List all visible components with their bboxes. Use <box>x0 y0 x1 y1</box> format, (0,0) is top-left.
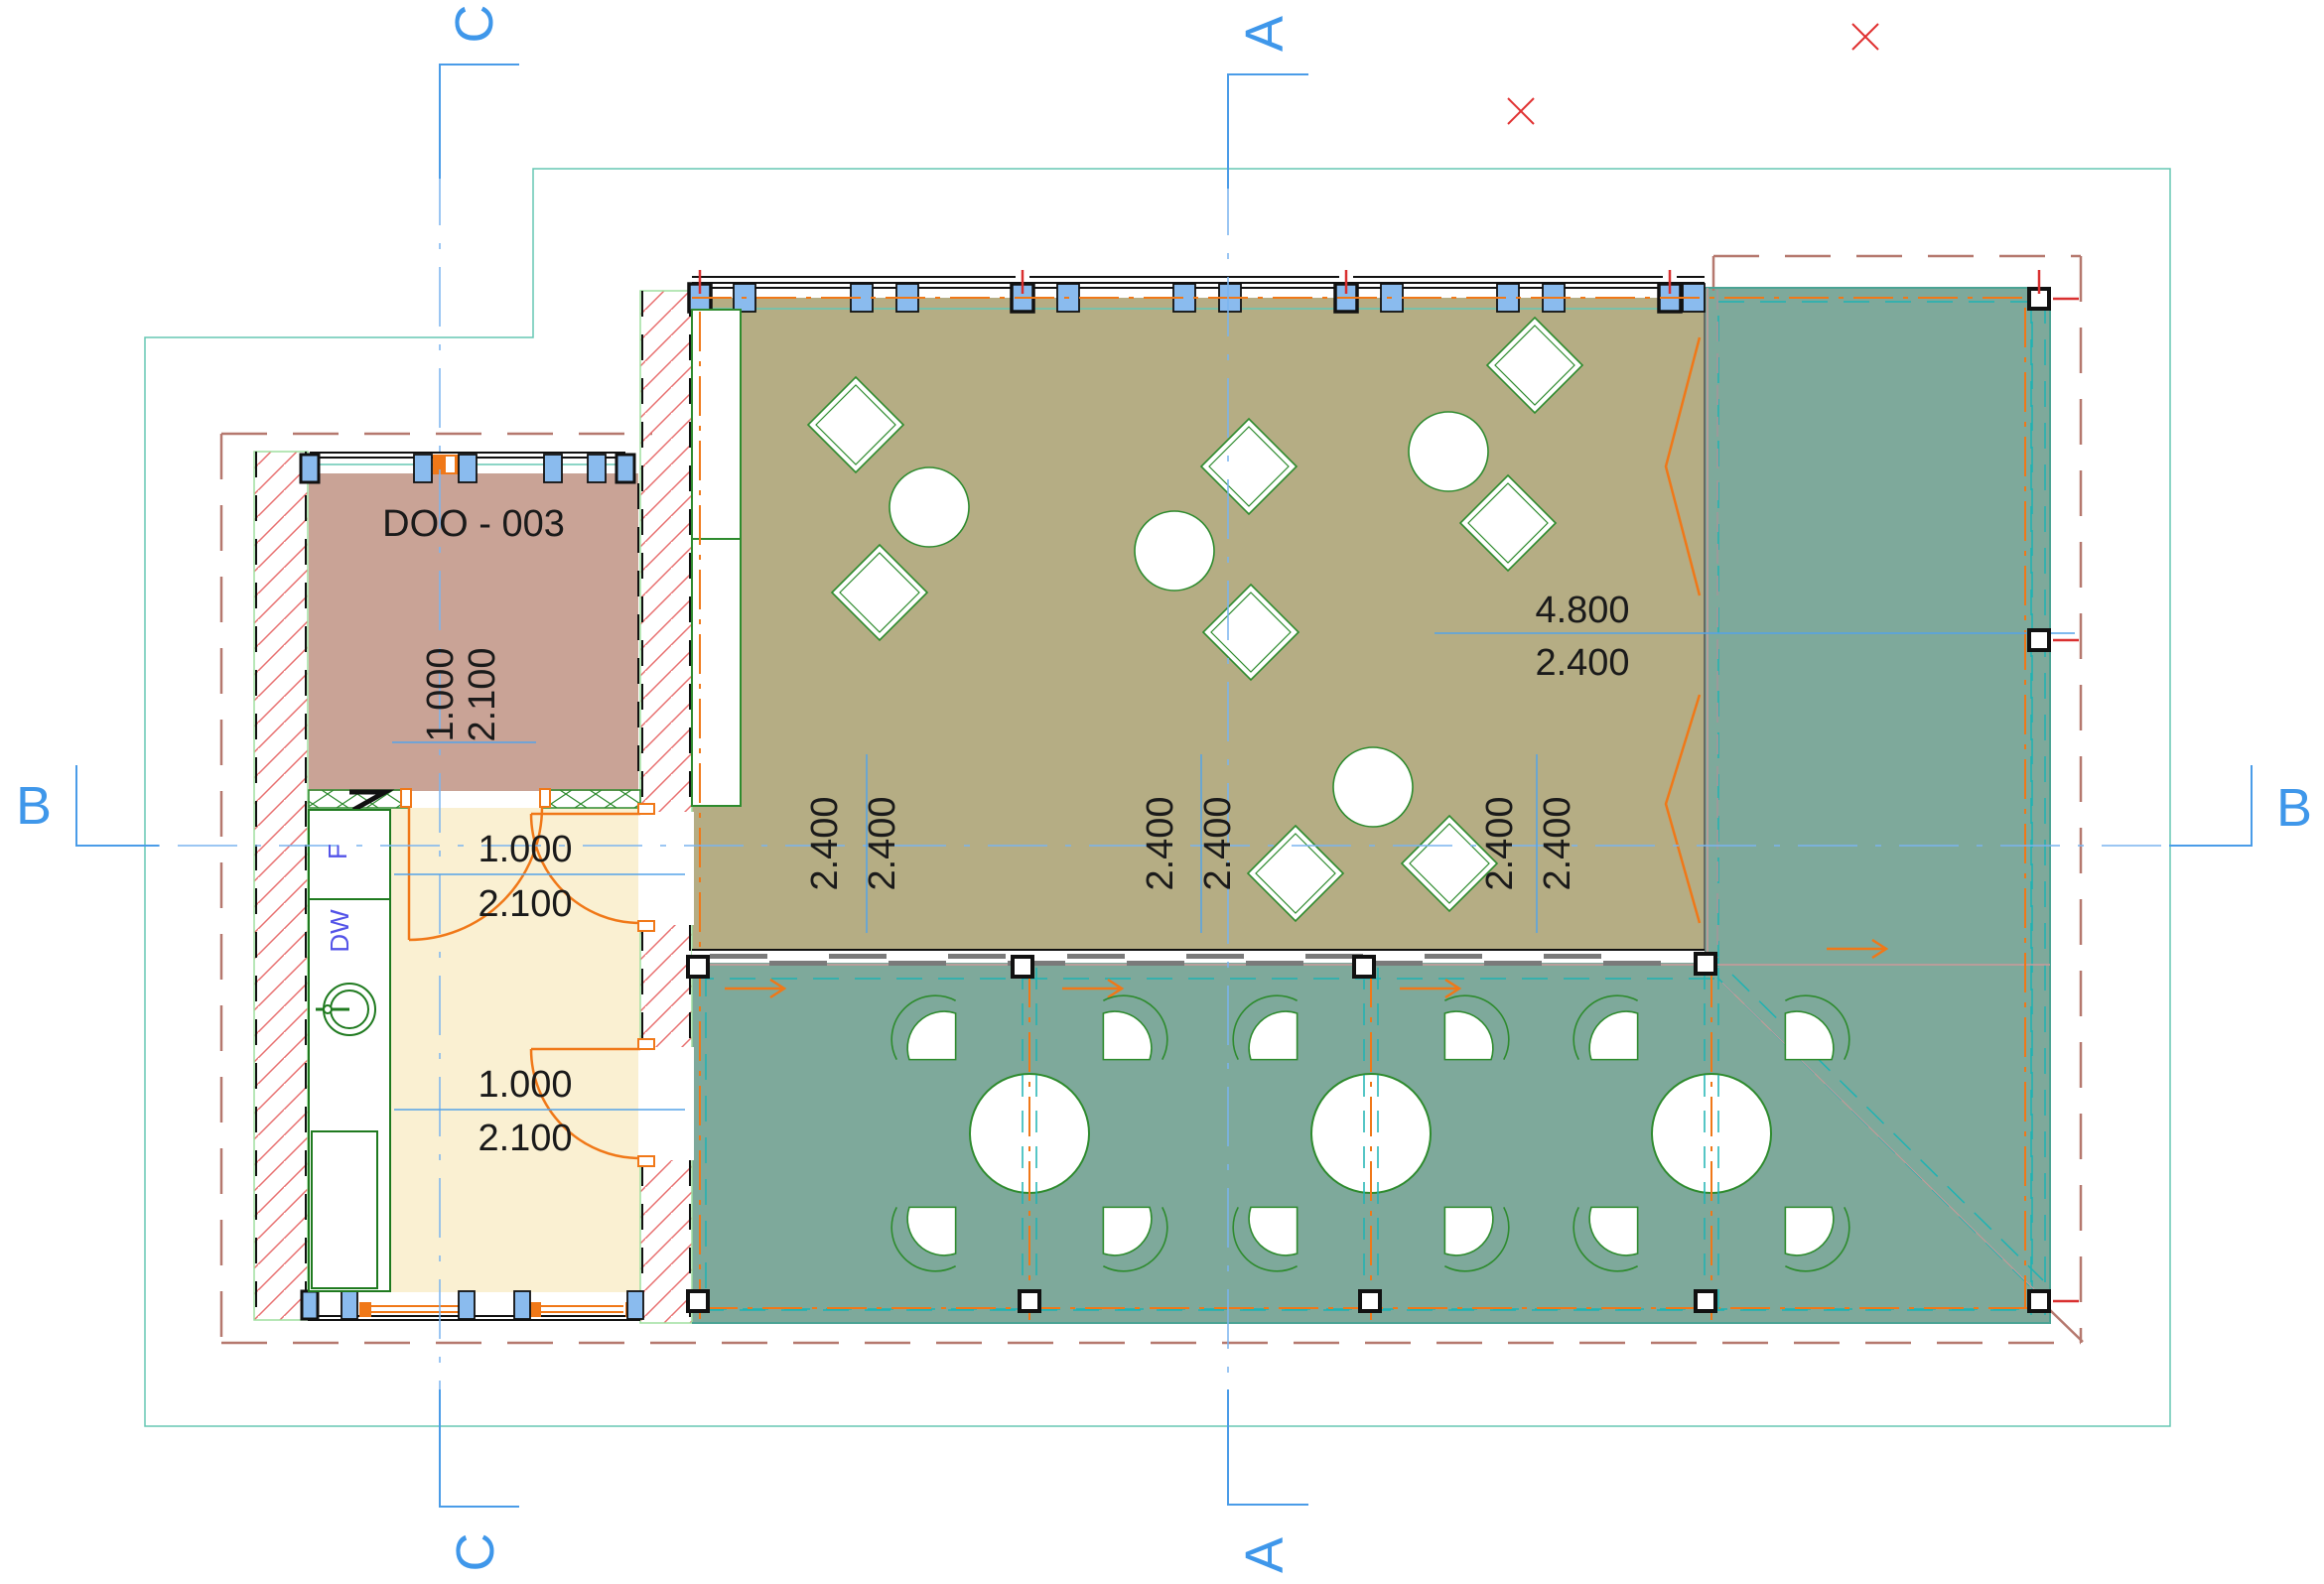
deck-post <box>1360 1291 1380 1311</box>
red-x-mark <box>1508 98 1534 124</box>
dishwasher-label: DW <box>325 909 354 953</box>
deck-post <box>1020 1291 1039 1311</box>
section-bracket-b-left <box>76 765 159 846</box>
window-post <box>302 1291 318 1319</box>
window-orange-sill <box>359 1302 371 1317</box>
sliding-panel <box>1484 961 1542 966</box>
wall-door-gap-upper <box>638 812 694 925</box>
section-marker-b-right: B <box>2276 778 2312 838</box>
window-post <box>342 1291 357 1319</box>
sliding-panel <box>1127 961 1184 966</box>
section-marker-b-left: B <box>16 776 52 836</box>
dim-bay-6: 2.400 <box>1537 796 1578 890</box>
section-bracket-b-right <box>2169 765 2252 846</box>
deck-post <box>2029 1291 2049 1311</box>
deck-post <box>1013 957 1032 977</box>
window-post <box>588 455 606 482</box>
window-post <box>616 455 634 482</box>
section-bracket-c-bottom <box>440 1389 519 1507</box>
wall-hatch-left <box>254 452 308 1320</box>
deck-post <box>1696 954 1715 974</box>
section-marker-c-top: C <box>445 5 504 44</box>
faucet-base <box>324 1005 332 1013</box>
dim-window-right-height: 2.400 <box>1535 642 1629 684</box>
dim-window-right-width: 4.800 <box>1535 590 1629 631</box>
wall-door-gap-lower <box>638 1047 694 1160</box>
window-post <box>544 455 562 482</box>
dim-bay-1: 2.400 <box>804 796 846 890</box>
window-post <box>414 455 432 482</box>
section-bracket-a-bottom <box>1228 1389 1308 1505</box>
dim-door-upper-height: 2.100 <box>478 883 572 925</box>
sliding-panel <box>889 961 946 966</box>
dim-door-lower-height: 2.100 <box>478 1118 572 1159</box>
sliding-panel <box>1603 961 1661 966</box>
window-post <box>459 455 477 482</box>
sliding-panel <box>948 954 1006 959</box>
sliding-panel <box>1425 954 1482 959</box>
dining-table-round <box>1135 511 1214 591</box>
dim-bay-5: 2.400 <box>1479 796 1521 890</box>
sliding-panel <box>1186 954 1244 959</box>
dining-table-round <box>1333 747 1413 827</box>
red-x-mark <box>1852 24 1878 50</box>
deck-post <box>1696 1291 1715 1311</box>
section-marker-c-bottom: C <box>446 1533 505 1572</box>
dining-table-round <box>1409 412 1488 491</box>
window-post <box>301 455 319 482</box>
window-post <box>514 1291 530 1319</box>
deck-post <box>2029 630 2049 650</box>
fridge-label: F <box>323 844 352 859</box>
dim-bay-2: 2.400 <box>862 796 903 890</box>
section-bracket-c-top <box>440 65 519 179</box>
partition-xhatch-right <box>542 790 640 808</box>
dim-door-upper-width: 1.000 <box>478 829 572 870</box>
dining-table-round <box>889 467 969 547</box>
deck-post <box>688 957 708 977</box>
dim-bay-4: 2.400 <box>1197 796 1239 890</box>
sliding-panel <box>1544 954 1601 959</box>
section-marker-a-top: A <box>1235 16 1295 52</box>
sliding-panel <box>769 961 827 966</box>
floor-plan-canvas: DOO - 003 1.000 2.100 1.000 2.100 1.000 … <box>0 0 2324 1584</box>
sliding-panel <box>1067 954 1125 959</box>
section-bracket-a-top <box>1228 74 1308 189</box>
dim-door-storage-width: 1.000 <box>420 647 462 741</box>
deck-post <box>688 1291 708 1311</box>
kitchen-counter <box>309 810 390 1291</box>
sliding-panel <box>710 954 767 959</box>
dim-door-lower-width: 1.000 <box>478 1064 572 1106</box>
deck-post <box>1354 957 1374 977</box>
kitchen-window-orange <box>365 1306 623 1312</box>
window-post <box>459 1291 475 1319</box>
red-x-marks <box>1508 24 1878 124</box>
dim-bay-3: 2.400 <box>1140 796 1181 890</box>
sliding-panel <box>829 954 887 959</box>
window-orange-sills <box>359 1302 637 1317</box>
floor-plan-page: DOO - 003 1.000 2.100 1.000 2.100 1.000 … <box>0 0 2324 1584</box>
window-post <box>627 1291 643 1319</box>
dim-door-storage-height: 2.100 <box>462 647 503 741</box>
sliding-panel <box>1246 961 1303 966</box>
room-label: DOO - 003 <box>382 503 565 545</box>
stove <box>312 1131 377 1288</box>
section-marker-a-bottom: A <box>1235 1537 1295 1573</box>
